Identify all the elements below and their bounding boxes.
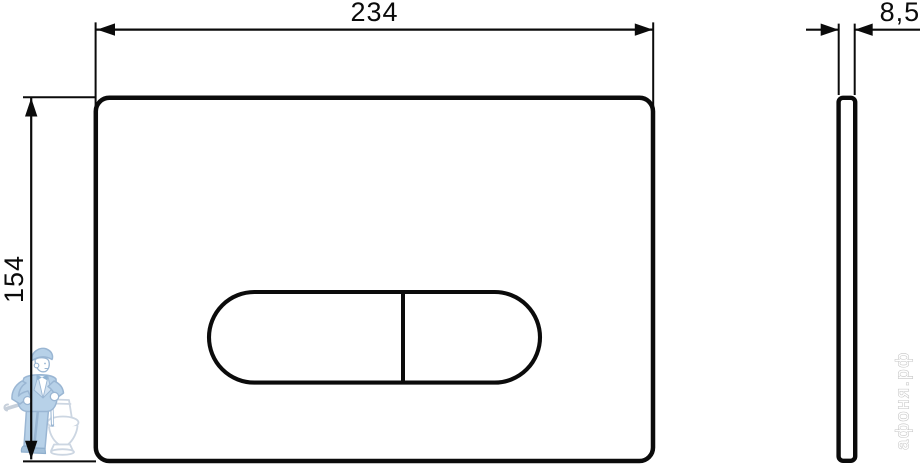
svg-text:афоня.рф: афоня.рф (893, 351, 913, 450)
svg-text:8,5: 8,5 (880, 0, 920, 27)
svg-text:234: 234 (350, 0, 398, 27)
svg-text:154: 154 (0, 255, 29, 303)
